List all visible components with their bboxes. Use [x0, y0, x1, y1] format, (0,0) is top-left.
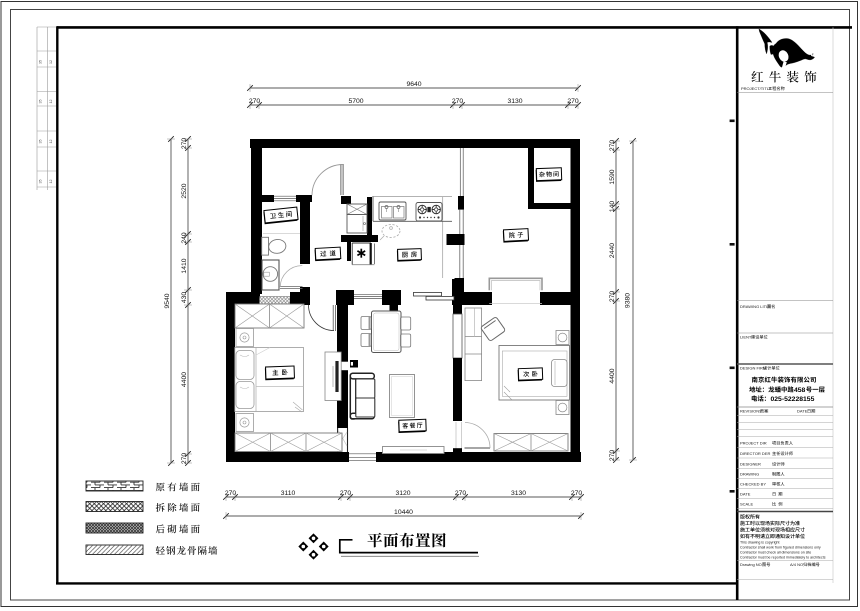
svg-text:DIRECTOR DER: DIRECTOR DER — [740, 451, 770, 456]
svg-text:2440: 2440 — [609, 243, 616, 258]
svg-text:9540: 9540 — [164, 293, 171, 308]
svg-text:35: 35 — [39, 60, 43, 64]
svg-text:9380: 9380 — [625, 293, 632, 308]
svg-text:4400: 4400 — [609, 368, 616, 383]
svg-text:270: 270 — [181, 138, 188, 150]
svg-text:025-52228155: 025-52228155 — [771, 396, 815, 403]
svg-text:270: 270 — [249, 98, 261, 105]
svg-text:140: 140 — [609, 201, 616, 213]
svg-text:Drawing NO: Drawing NO — [740, 562, 762, 567]
svg-text:SCALE: SCALE — [740, 502, 753, 507]
svg-text:35: 35 — [39, 180, 43, 184]
svg-text:1410: 1410 — [181, 258, 188, 273]
svg-text:270: 270 — [571, 490, 583, 497]
svg-text:LIENT: LIENT — [740, 335, 752, 340]
svg-text:12: 12 — [49, 140, 53, 144]
svg-text:430: 430 — [181, 292, 188, 304]
svg-text:PROJECT DIR: PROJECT DIR — [740, 441, 767, 446]
svg-text:12: 12 — [49, 180, 53, 184]
svg-text:3130: 3130 — [507, 98, 522, 105]
svg-text:PROJECT/TITLE: PROJECT/TITLE — [741, 86, 772, 91]
svg-text:DRAWING LITLE: DRAWING LITLE — [740, 304, 771, 309]
svg-text:270: 270 — [340, 490, 352, 497]
svg-text:9640: 9640 — [406, 81, 421, 88]
svg-text:3120: 3120 — [395, 490, 410, 497]
svg-text:270: 270 — [225, 490, 237, 497]
svg-text:DRAWING: DRAWING — [740, 472, 759, 477]
svg-text:12: 12 — [49, 60, 53, 64]
svg-text:270: 270 — [567, 98, 579, 105]
svg-text:240: 240 — [181, 232, 188, 244]
svg-text:This drawing is copyright: This drawing is copyright — [740, 541, 780, 545]
svg-text:35: 35 — [39, 100, 43, 104]
svg-text:12: 12 — [49, 100, 53, 104]
svg-text:DATE: DATE — [797, 409, 808, 414]
svg-text:10440: 10440 — [394, 509, 413, 516]
svg-text:270: 270 — [609, 140, 616, 152]
svg-text:Contractor must be reported im: Contractor must be reported immediately … — [740, 556, 826, 560]
svg-text:5700: 5700 — [348, 98, 363, 105]
svg-text:DESIGN FIRM: DESIGN FIRM — [740, 366, 766, 371]
svg-text:270: 270 — [609, 450, 616, 462]
svg-text:A/4 NO: A/4 NO — [790, 562, 803, 567]
svg-text:458: 458 — [794, 387, 806, 394]
svg-text:REVISIONS: REVISIONS — [740, 409, 762, 414]
svg-text:1590: 1590 — [609, 169, 616, 184]
svg-text:35: 35 — [39, 140, 43, 144]
svg-text:DATE: DATE — [740, 492, 751, 497]
svg-text:DESIGNER: DESIGNER — [740, 462, 761, 467]
svg-text:270: 270 — [609, 291, 616, 303]
svg-text:Contractor must check all dime: Contractor must check all dimensions on … — [740, 551, 811, 555]
svg-text:CHECKED BY: CHECKED BY — [740, 482, 766, 487]
svg-text:270: 270 — [181, 453, 188, 465]
svg-text:3130: 3130 — [511, 490, 526, 497]
svg-text:Contractor shall work from fig: Contractor shall work from figured dimen… — [740, 546, 821, 550]
svg-text:270: 270 — [452, 98, 464, 105]
svg-text:4400: 4400 — [181, 372, 188, 387]
svg-text:270: 270 — [455, 490, 467, 497]
svg-text:3110: 3110 — [281, 490, 296, 497]
svg-text:2520: 2520 — [181, 183, 188, 198]
